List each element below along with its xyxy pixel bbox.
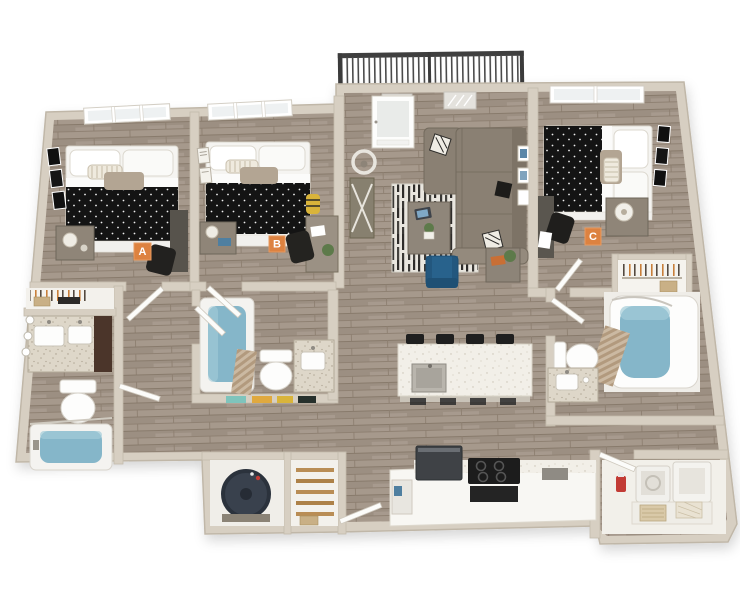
nightstand-b (200, 222, 236, 254)
toilet-b (260, 350, 292, 390)
bedroom-c-window (550, 86, 644, 103)
washer (636, 466, 670, 502)
living-wall-art (518, 146, 529, 205)
nightstand-a (56, 226, 94, 260)
bathtub-b (200, 298, 257, 395)
side-table (486, 248, 520, 282)
kitchen-island (398, 334, 532, 405)
unit-label-c: C (585, 228, 601, 245)
nightstand-c (606, 198, 648, 236)
pouf-b (306, 194, 320, 214)
toilet-a (60, 380, 96, 423)
vanity-c (548, 368, 598, 402)
stove (468, 458, 520, 502)
dryer (673, 462, 711, 502)
balcony-door (372, 96, 414, 148)
dishwasher (392, 480, 412, 514)
vanity-a (22, 316, 112, 372)
pantry (291, 460, 338, 526)
water-heater (222, 471, 270, 522)
closet-c (618, 260, 686, 296)
laundry-counter (632, 502, 712, 524)
svg-text:C: C (589, 231, 597, 243)
laundry-room (602, 460, 726, 534)
coffee-table (408, 202, 450, 254)
floorplan-svg: A (0, 0, 740, 592)
floorplan-page: A (0, 0, 740, 592)
bathtub-a (30, 418, 112, 470)
utility-closets (210, 460, 338, 526)
closet-a (26, 288, 114, 309)
accent-armchair (426, 256, 458, 288)
unit-label-a: A (134, 243, 151, 260)
svg-text:B: B (273, 239, 281, 251)
vanity-b (294, 340, 334, 392)
towel-shelf (226, 396, 316, 403)
svg-text:A: A (139, 246, 147, 258)
unit-label-b: B (269, 236, 285, 252)
